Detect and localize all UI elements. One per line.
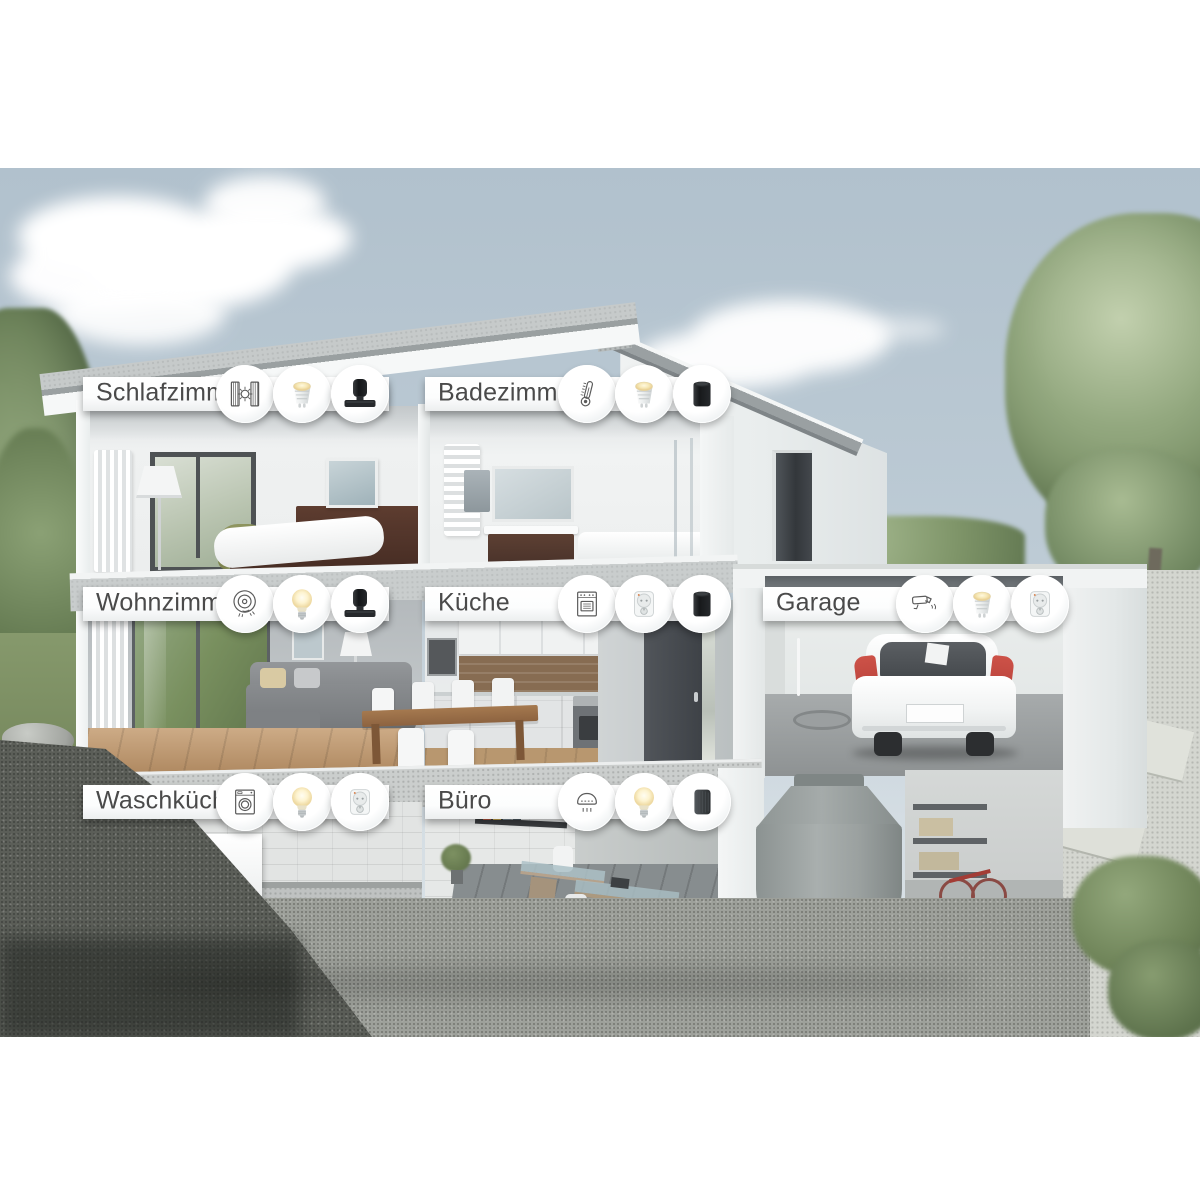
bathroom-mirror	[492, 466, 574, 522]
room-label: Garage	[776, 588, 861, 617]
laptop-icon	[610, 877, 629, 889]
bathroom-sink-top	[484, 526, 578, 534]
gu10-bulb-icon	[615, 365, 673, 423]
kitchen-wall-oven	[427, 638, 457, 676]
room-banner-buero: Büro	[425, 785, 717, 819]
smart-plug-icon	[1011, 575, 1069, 633]
cloud	[55, 283, 225, 345]
dining-table-legs	[371, 724, 380, 764]
fabric-speaker-icon	[673, 773, 731, 831]
front-door-glass	[702, 624, 715, 770]
door-handle-icon	[694, 692, 698, 702]
charging-cable	[797, 638, 800, 696]
smart-plug-icon	[615, 575, 673, 633]
e27-bulb-icon	[273, 773, 331, 831]
garage-right-wall	[1063, 588, 1147, 828]
sofa-cushion	[260, 668, 286, 688]
bedroom-radiator	[94, 450, 132, 572]
oven-icon	[558, 575, 616, 633]
room-banner-badezimmer: Badezimmer	[425, 377, 717, 411]
dining-chair	[398, 728, 424, 768]
storage-shelf	[913, 838, 987, 844]
storage-shelf	[913, 804, 987, 810]
car	[850, 634, 1020, 762]
house-ground-shadow	[120, 968, 980, 998]
wall-divider	[418, 404, 430, 580]
gu10-bulb-icon	[953, 575, 1011, 633]
room-label: Büro	[438, 786, 492, 815]
living-lamp	[340, 632, 372, 656]
car-wheel	[966, 732, 994, 756]
cloud	[205, 176, 325, 228]
sofa-cushion	[294, 668, 320, 688]
bathroom	[428, 408, 716, 576]
storage-box	[919, 818, 953, 836]
washing-machine-icon	[216, 773, 274, 831]
room-banner-kueche: Küche	[425, 587, 717, 621]
office-plant	[441, 844, 471, 872]
curtain-sun-icon	[216, 365, 274, 423]
speaker-soundbar-icon	[331, 575, 389, 633]
cloud	[18, 196, 218, 276]
smart-plug-icon	[331, 773, 389, 831]
thermometer-icon	[558, 365, 616, 423]
bathroom-shower-glass	[690, 438, 693, 570]
bedroom-lamp-pole	[158, 498, 161, 570]
black-speaker-icon	[673, 575, 731, 633]
garage-left-pillar	[733, 588, 765, 778]
robot-vacuum-icon	[216, 575, 274, 633]
room-banner-wohnzimmer: Wohnzimmer	[83, 587, 389, 621]
room-banner-schlafzimmer: Schlafzimmer	[83, 377, 389, 411]
room-label: Küche	[438, 588, 510, 617]
bush-bottom-right	[1108, 940, 1200, 1037]
speaker-soundbar-icon	[331, 365, 389, 423]
bedroom-window-mullion	[196, 456, 200, 558]
smart-home-cutaway-scene: Schlafzimmer Badezimmer Wohnzimmer Küche…	[0, 168, 1200, 1037]
room-banner-waschkueche: Waschküche	[83, 785, 389, 819]
car-window-paper	[925, 643, 950, 666]
bedroom	[88, 406, 420, 576]
garage-manhole	[793, 710, 851, 730]
car-wheel	[874, 732, 902, 756]
bathroom-right-wall	[700, 416, 734, 578]
dining-table-legs	[515, 720, 524, 760]
car-plate	[906, 704, 964, 723]
room-banner-garage: Garage	[763, 587, 1057, 621]
car-bumper-line	[862, 726, 1006, 731]
upper-right-window	[772, 450, 812, 561]
living-radiator	[92, 606, 128, 742]
e27-bulb-icon	[615, 773, 673, 831]
smoke-detector-icon	[558, 773, 616, 831]
cloud	[855, 318, 945, 340]
e27-bulb-icon	[273, 575, 331, 633]
office-plant-pot	[451, 870, 463, 884]
black-speaker-icon	[673, 365, 731, 423]
bathroom-shower-glass	[674, 440, 677, 570]
gu10-bulb-icon	[273, 365, 331, 423]
cloud	[690, 300, 890, 374]
bathroom-towel	[464, 470, 490, 512]
security-camera-icon	[896, 575, 954, 633]
storage-box	[919, 852, 959, 870]
cistern-shoulder	[756, 786, 902, 828]
bedroom-picture	[326, 458, 378, 508]
